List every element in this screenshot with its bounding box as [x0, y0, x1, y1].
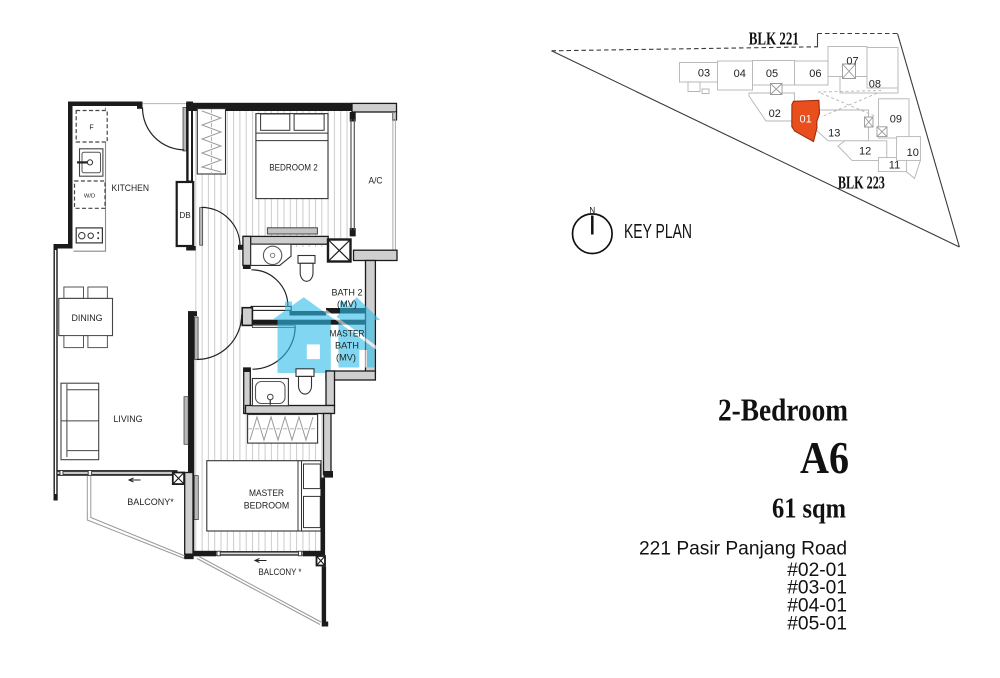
svg-text:08: 08: [869, 78, 881, 90]
svg-text:A6: A6: [800, 433, 849, 483]
svg-text:BLK 223: BLK 223: [838, 172, 885, 192]
svg-text:#05-01: #05-01: [787, 613, 847, 634]
svg-text:09: 09: [890, 113, 902, 125]
svg-text:BALCONY*: BALCONY*: [127, 497, 174, 507]
svg-text:(MV): (MV): [336, 353, 356, 363]
svg-text:61 sqm: 61 sqm: [772, 494, 846, 525]
svg-text:03: 03: [698, 68, 710, 80]
svg-text:2-Bedroom: 2-Bedroom: [718, 392, 848, 428]
svg-text:BLK 221: BLK 221: [749, 29, 799, 49]
svg-text:04: 04: [734, 68, 746, 80]
svg-text:BATH 2: BATH 2: [332, 288, 363, 298]
svg-text:MASTER: MASTER: [249, 488, 284, 498]
svg-text:13: 13: [828, 127, 840, 139]
svg-text:10: 10: [907, 147, 919, 159]
svg-text:(MV): (MV): [337, 299, 357, 309]
svg-text:05: 05: [766, 68, 778, 80]
svg-text:KITCHEN: KITCHEN: [112, 183, 150, 193]
svg-text:01: 01: [799, 113, 811, 125]
svg-text:12: 12: [859, 146, 871, 158]
svg-text:02: 02: [769, 108, 781, 120]
svg-text:BALCONY *: BALCONY *: [259, 567, 302, 577]
svg-text:11: 11: [889, 160, 900, 172]
svg-text:MASTER: MASTER: [330, 329, 365, 339]
svg-text:BEDROOM 2: BEDROOM 2: [269, 163, 318, 173]
svg-text:07: 07: [846, 55, 858, 67]
svg-text:BATH: BATH: [335, 341, 359, 351]
svg-text:LIVING: LIVING: [114, 414, 143, 424]
svg-text:F: F: [89, 125, 93, 132]
svg-text:221 Pasir Panjang Road: 221 Pasir Panjang Road: [639, 539, 847, 560]
svg-text:N: N: [589, 206, 595, 215]
svg-text:DB: DB: [179, 211, 191, 220]
svg-text:06: 06: [809, 68, 821, 80]
svg-text:BEDROOM: BEDROOM: [244, 501, 290, 511]
svg-text:KEY PLAN: KEY PLAN: [624, 221, 692, 243]
svg-text:DINING: DINING: [72, 313, 103, 323]
svg-text:W/D: W/D: [84, 194, 95, 200]
svg-text:A/C: A/C: [369, 176, 383, 186]
